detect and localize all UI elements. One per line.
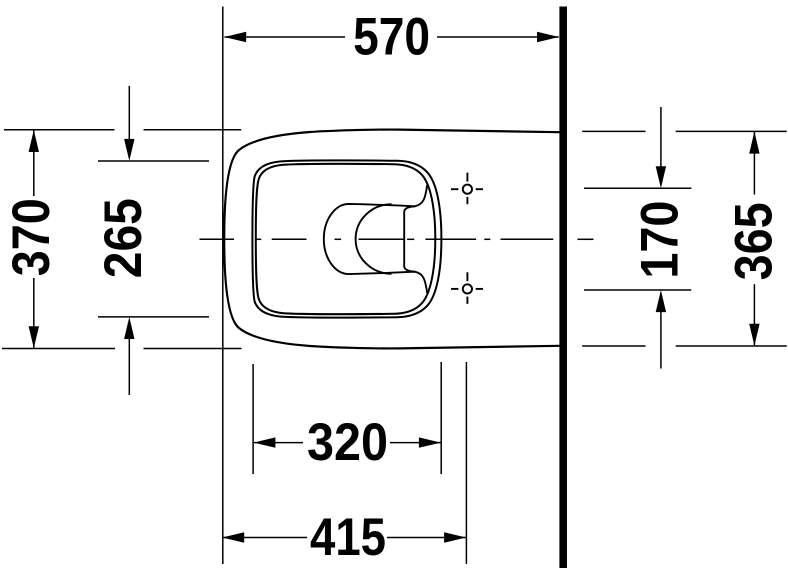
- svg-text:570: 570: [353, 8, 430, 67]
- svg-text:370: 370: [2, 198, 61, 276]
- svg-text:415: 415: [310, 508, 386, 567]
- svg-text:265: 265: [94, 198, 153, 278]
- svg-text:170: 170: [630, 201, 689, 279]
- svg-text:320: 320: [307, 413, 388, 472]
- svg-text:365: 365: [725, 202, 784, 280]
